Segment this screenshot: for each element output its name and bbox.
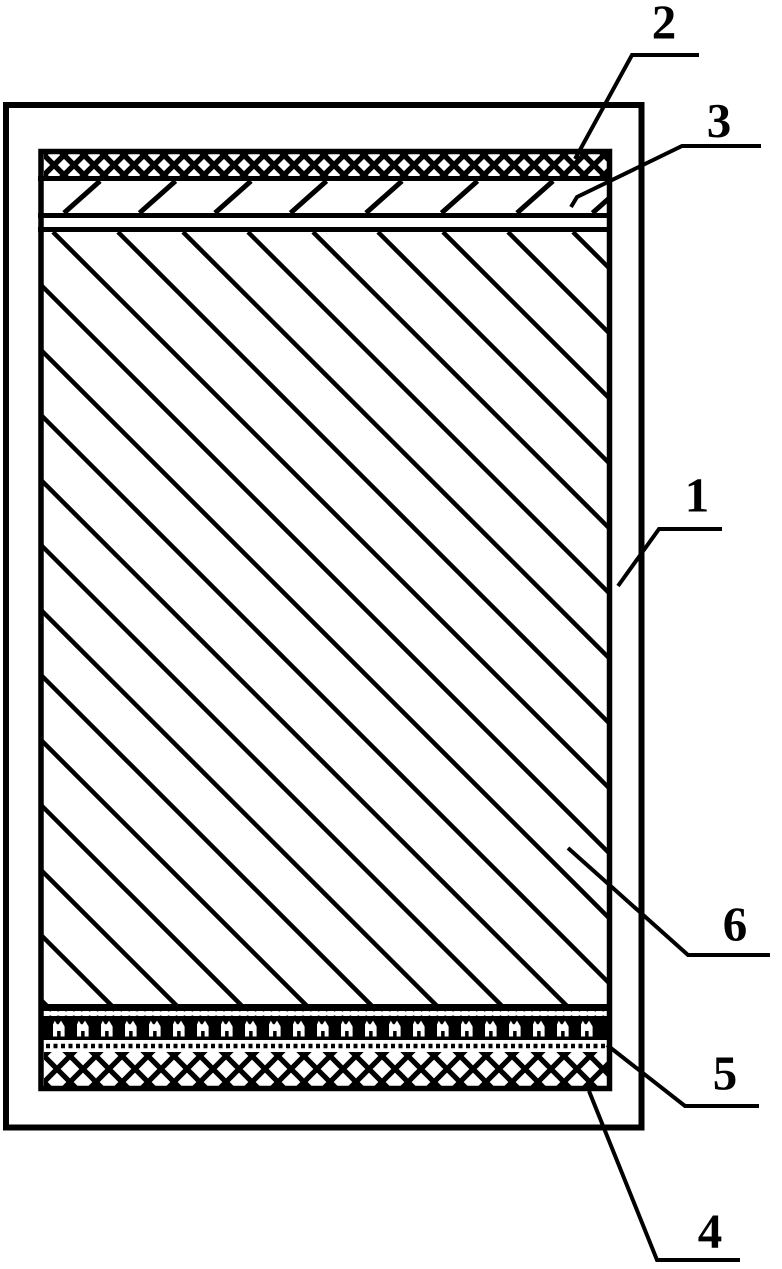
svg-text:2: 2: [652, 0, 677, 50]
svg-text:3: 3: [707, 93, 732, 148]
svg-text:1: 1: [685, 468, 710, 523]
svg-text:4: 4: [698, 1204, 723, 1259]
svg-text:6: 6: [723, 897, 748, 952]
svg-text:5: 5: [713, 1046, 738, 1101]
